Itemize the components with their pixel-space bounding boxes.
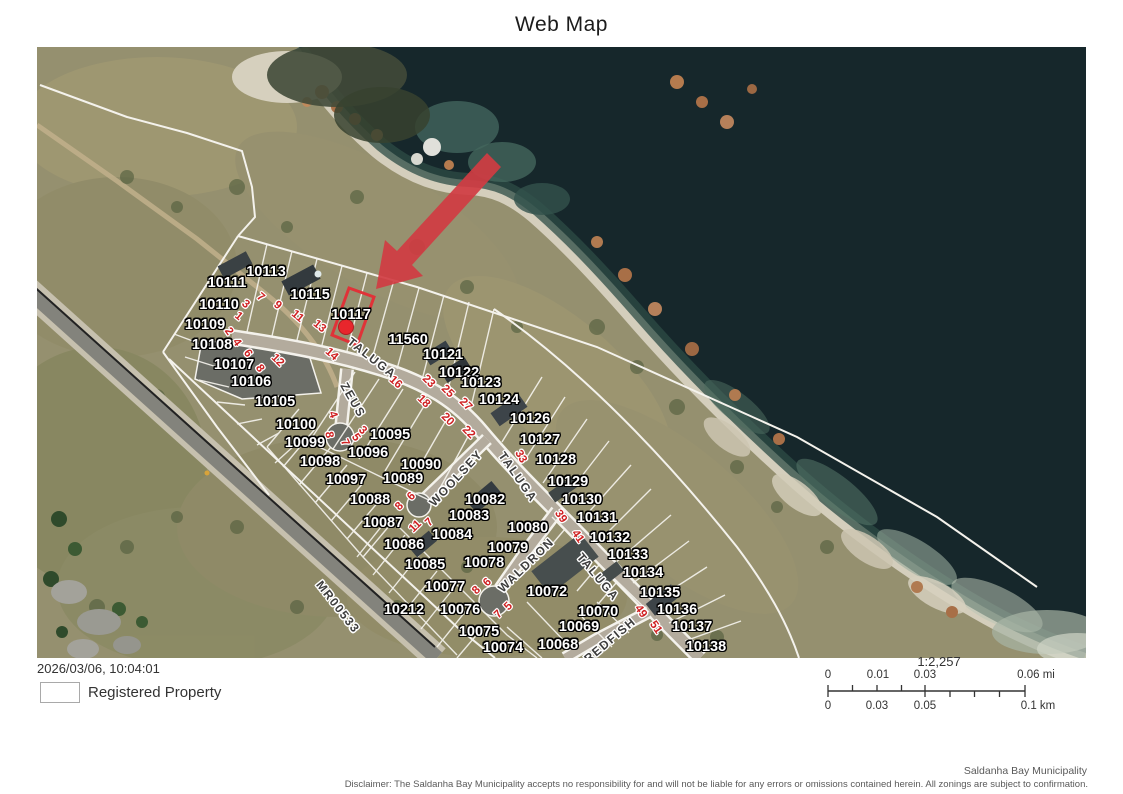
street-name-label: MR00533 bbox=[314, 579, 362, 636]
parcel-label: 10115 bbox=[290, 288, 330, 303]
house-number-label: 5 bbox=[503, 601, 516, 614]
scale-bar bbox=[823, 683, 1033, 699]
parcel-label: 10070 bbox=[578, 605, 618, 620]
house-number-label: 3 bbox=[239, 299, 251, 312]
house-number-label: 11 bbox=[408, 519, 425, 536]
parcel-label: 10111 bbox=[208, 276, 247, 291]
parcel-label: 10079 bbox=[488, 541, 528, 556]
disclaimer: Disclaimer: The Saldanha Bay Municipalit… bbox=[345, 779, 1088, 790]
house-number-label: 51 bbox=[647, 619, 664, 636]
house-number-label: 4 bbox=[326, 410, 339, 420]
parcel-label: 10135 bbox=[640, 586, 680, 601]
parcel-label: 10088 bbox=[350, 493, 390, 508]
parcel-label: 10107 bbox=[214, 358, 254, 373]
house-number-label: 7 bbox=[493, 609, 506, 622]
scale-mi-3: 0.06 mi bbox=[1017, 669, 1055, 681]
parcel-label: 10137 bbox=[672, 620, 712, 635]
parcel-label: 10069 bbox=[559, 620, 599, 635]
house-number-label: 27 bbox=[456, 396, 473, 413]
parcel-label: 10080 bbox=[508, 521, 548, 536]
parcel-label: 10131 bbox=[577, 511, 617, 526]
parcel-label: 10083 bbox=[449, 509, 489, 524]
parcel-label: 10126 bbox=[510, 412, 550, 427]
house-number-label: 22 bbox=[459, 424, 476, 441]
house-number-label: 39 bbox=[552, 508, 569, 525]
scale-mi-0: 0 bbox=[825, 669, 831, 681]
map-datetime: 2026/03/06, 10:04:01 bbox=[37, 661, 160, 676]
parcel-label: 10128 bbox=[536, 453, 576, 468]
house-number-label: 7 bbox=[254, 292, 266, 305]
parcel-label: 10130 bbox=[562, 493, 602, 508]
street-name-label: ZEUS bbox=[338, 381, 367, 420]
parcel-label: 10100 bbox=[276, 418, 316, 433]
parcel-label: 10117 bbox=[331, 308, 371, 323]
parcel-label: 10084 bbox=[432, 528, 472, 543]
scale-km-3: 0.1 km bbox=[1021, 700, 1056, 712]
page-title: Web Map bbox=[0, 13, 1123, 37]
scale-km-0: 0 bbox=[825, 700, 831, 712]
parcel-label: 10099 bbox=[285, 436, 325, 451]
parcel-label: 10068 bbox=[538, 638, 578, 653]
parcel-label: 10076 bbox=[440, 603, 480, 618]
house-number-label: 11 bbox=[289, 309, 306, 326]
parcel-label: 10074 bbox=[483, 641, 523, 656]
attribution: Saldanha Bay Municipality bbox=[964, 765, 1087, 777]
parcel-label: 10132 bbox=[590, 531, 630, 546]
house-number-label: 6 bbox=[482, 577, 495, 590]
parcel-label: 10109 bbox=[185, 318, 225, 333]
legend-swatch-registered-property bbox=[40, 682, 80, 703]
house-number-label: 6 bbox=[406, 491, 419, 504]
parcel-label: 10086 bbox=[384, 538, 424, 553]
house-number-label: 8 bbox=[471, 585, 484, 598]
parcel-label: 10096 bbox=[348, 446, 388, 461]
parcel-label: 10105 bbox=[255, 395, 295, 410]
parcel-label: 10082 bbox=[465, 493, 505, 508]
parcel-label: 10110 bbox=[199, 298, 239, 313]
house-number-label: 20 bbox=[438, 411, 455, 428]
parcel-label: 10078 bbox=[464, 556, 504, 571]
house-number-label: 8 bbox=[322, 431, 334, 439]
house-number-label: 23 bbox=[419, 373, 436, 390]
house-number-label: 41 bbox=[569, 528, 586, 545]
parcel-label: 10089 bbox=[383, 472, 423, 487]
parcel-label: 10134 bbox=[623, 566, 663, 581]
parcel-label: 10133 bbox=[608, 548, 648, 563]
parcel-label: 10075 bbox=[459, 625, 499, 640]
parcel-label: 10106 bbox=[231, 375, 271, 390]
scale-km-2: 0.05 bbox=[914, 700, 936, 712]
parcel-label: 11560 bbox=[388, 333, 428, 348]
scale-ratio: 1:2,257 bbox=[917, 654, 960, 669]
scale-km-1: 0.03 bbox=[866, 700, 888, 712]
parcel-label: 10138 bbox=[686, 640, 726, 655]
legend-label: Registered Property bbox=[88, 684, 221, 701]
house-number-label: 14 bbox=[322, 346, 339, 363]
parcel-label: 10098 bbox=[300, 455, 340, 470]
parcel-label: 10129 bbox=[548, 475, 588, 490]
parcel-label: 10212 bbox=[384, 603, 424, 618]
house-number-label: 13 bbox=[310, 318, 327, 335]
web-map-page: Web Map bbox=[0, 0, 1123, 794]
parcel-label: 10108 bbox=[192, 338, 232, 353]
parcel-label: 10121 bbox=[423, 348, 463, 363]
parcel-label: 10072 bbox=[527, 585, 567, 600]
scale-mi-1: 0.01 bbox=[867, 669, 889, 681]
house-number-label: 49 bbox=[632, 603, 649, 620]
house-number-label: 8 bbox=[394, 501, 407, 514]
parcel-label: 10097 bbox=[326, 473, 366, 488]
parcel-label: 10113 bbox=[246, 265, 286, 280]
scale-mi-2: 0.03 bbox=[914, 669, 936, 681]
parcel-label: 10136 bbox=[657, 603, 697, 618]
parcel-label: 10123 bbox=[461, 376, 501, 391]
parcel-label: 10124 bbox=[479, 393, 519, 408]
parcel-label: 10085 bbox=[405, 558, 445, 573]
map-viewport[interactable]: 1011310111101101010910108101071010610105… bbox=[37, 47, 1086, 658]
parcel-label: 10127 bbox=[520, 433, 560, 448]
parcel-label: 10095 bbox=[370, 428, 410, 443]
map-label-layer: 1011310111101101010910108101071010610105… bbox=[37, 47, 1086, 658]
parcel-label: 10087 bbox=[363, 516, 403, 531]
house-number-label: 12 bbox=[268, 352, 285, 369]
house-number-label: 25 bbox=[438, 383, 455, 400]
parcel-label: 10077 bbox=[425, 580, 465, 595]
house-number-label: 9 bbox=[271, 300, 283, 313]
house-number-label: 18 bbox=[414, 393, 431, 410]
